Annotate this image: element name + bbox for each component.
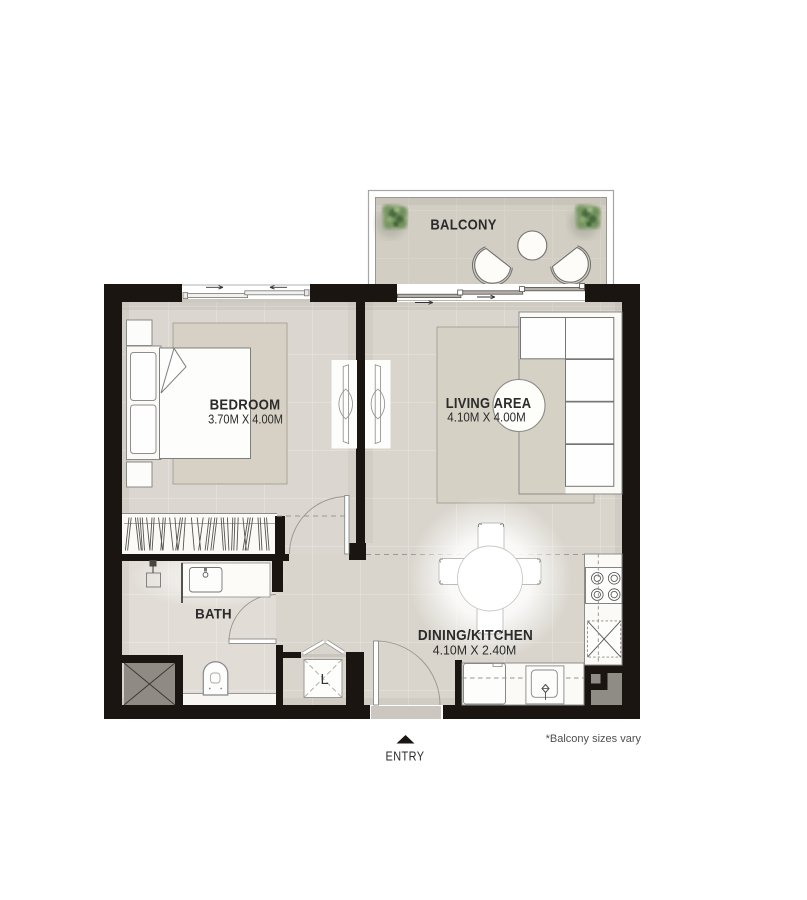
svg-text:4.10M X 2.40M: 4.10M X 2.40M bbox=[433, 643, 517, 657]
svg-text:L: L bbox=[320, 672, 328, 688]
svg-text:LIVING AREA: LIVING AREA bbox=[446, 395, 532, 411]
svg-text:ENTRY: ENTRY bbox=[386, 749, 425, 764]
svg-text:*Balcony sizes vary: *Balcony sizes vary bbox=[546, 733, 642, 745]
svg-text:3.70M X 4.00M: 3.70M X 4.00M bbox=[208, 412, 283, 427]
svg-text:BATH: BATH bbox=[195, 606, 232, 621]
svg-text:DINING/KITCHEN: DINING/KITCHEN bbox=[418, 627, 533, 644]
svg-text:4.10M X 4.00M: 4.10M X 4.00M bbox=[447, 410, 525, 425]
svg-text:BALCONY: BALCONY bbox=[430, 216, 497, 233]
svg-text:BEDROOM: BEDROOM bbox=[210, 396, 281, 413]
